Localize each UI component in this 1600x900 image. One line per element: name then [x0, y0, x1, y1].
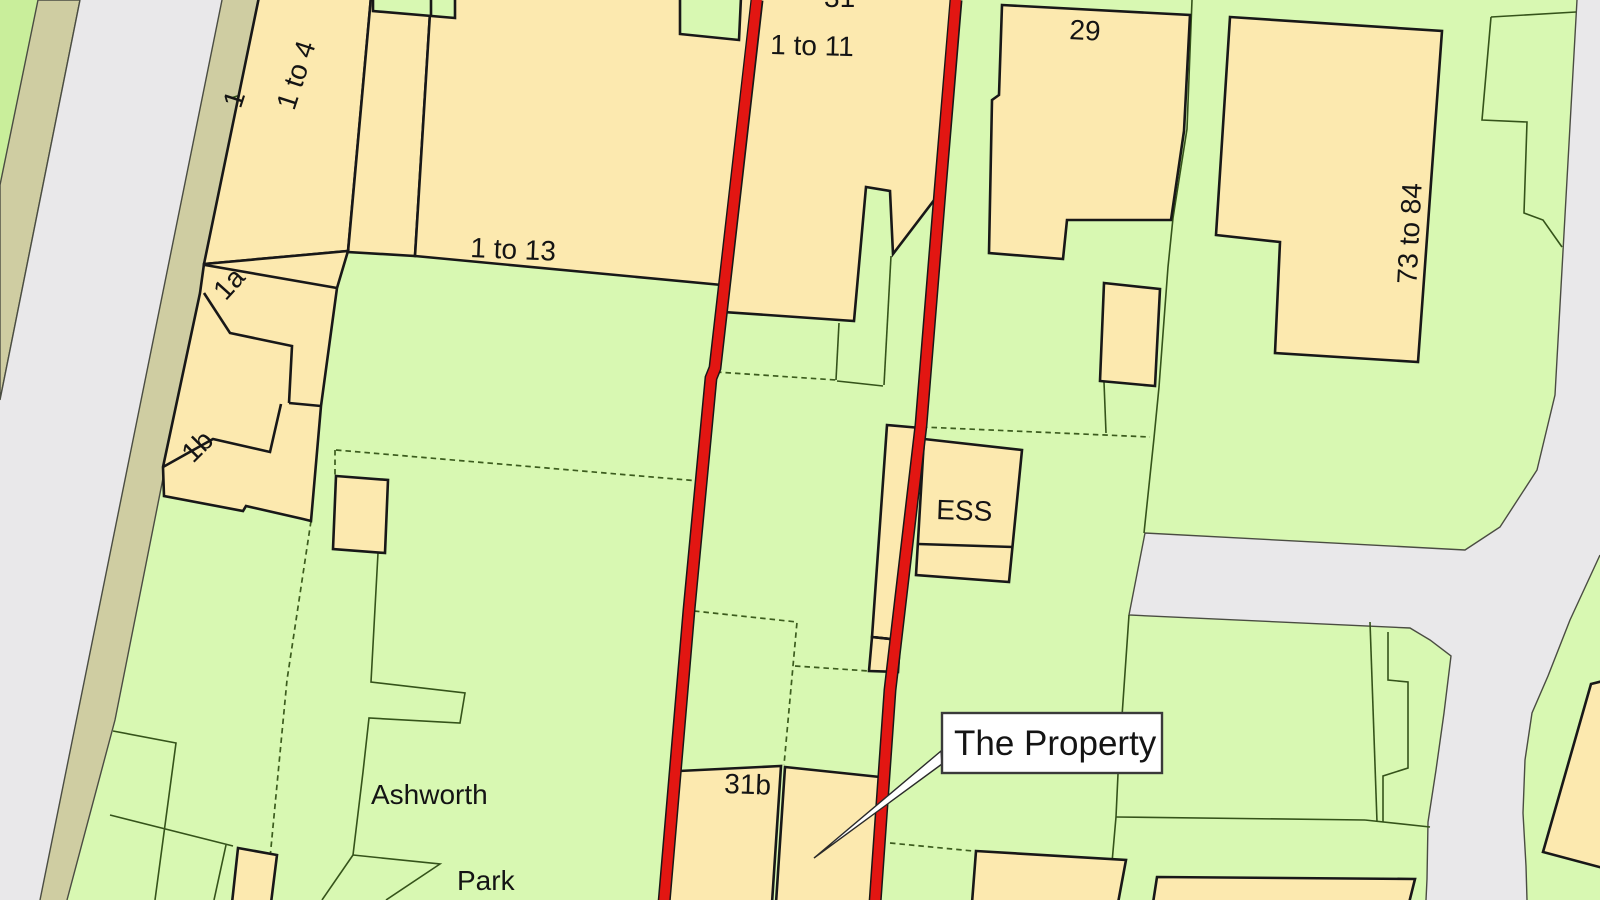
svg-text:The Property: The Property [954, 724, 1157, 763]
svg-text:31b: 31b [724, 768, 772, 801]
svg-text:73 to 84: 73 to 84 [1391, 182, 1427, 285]
svg-text:Park: Park [457, 865, 516, 896]
svg-text:31: 31 [824, 0, 855, 13]
svg-text:ESS: ESS [936, 494, 993, 527]
svg-text:1 to 13: 1 to 13 [470, 232, 557, 267]
svg-text:1 to 11: 1 to 11 [770, 29, 854, 62]
svg-text:Ashworth: Ashworth [371, 779, 488, 810]
svg-text:29: 29 [1069, 14, 1102, 47]
